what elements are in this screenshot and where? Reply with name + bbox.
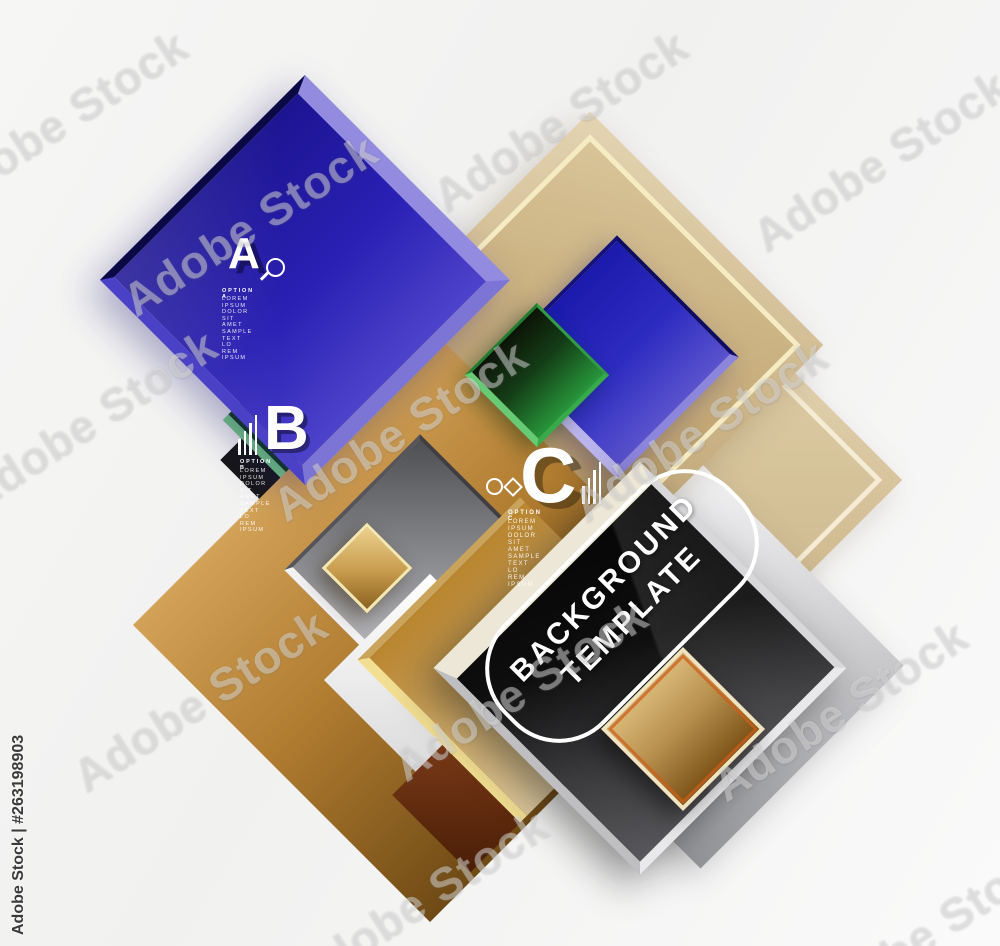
option-b-line: LOREM IPSUM: [240, 468, 271, 481]
option-c-text: LOREM IPSUM DOLOR SIT AMET SAMPLE TEXT L…: [508, 519, 541, 589]
option-b-line: SAMPLE TEXT LO: [240, 501, 271, 521]
magnifier-icon: [266, 258, 285, 277]
option-c-line: LOREM IPSUM: [508, 519, 541, 533]
option-a-letter: A: [228, 232, 260, 276]
option-b-line: DOLOR SIT AMET: [240, 481, 271, 501]
option-c-letter: C: [520, 436, 576, 514]
option-c-line: DOLOR SIT AMET: [508, 533, 541, 554]
watermark-id-text: Adobe Stock | #263198903: [10, 735, 28, 935]
option-c-line: REM IPSUM: [508, 575, 541, 589]
option-a-line: REM IPSUM: [222, 349, 253, 362]
option-a-line: DOLOR SIT AMET: [222, 309, 253, 329]
circle-icon: [486, 478, 503, 495]
option-b-line: REM IPSUM: [240, 521, 271, 534]
option-a-text: LOREM IPSUM DOLOR SIT AMET SAMPLE TEXT L…: [222, 296, 253, 362]
option-a-line: SAMPLE TEXT LO: [222, 329, 253, 349]
equalizer-bars-icon: [582, 460, 601, 504]
watermark-text: Adobe Stock: [0, 18, 197, 222]
watermark-text: Adobe Stock: [743, 58, 1000, 262]
option-b-text: LOREM IPSUM DOLOR SIT AMET SAMPLE TEXT L…: [240, 468, 271, 534]
equalizer-bars-icon: [238, 413, 257, 455]
stock-image-canvas: BACKGROUND TEMPLATE A OPTION A LOREM IPS…: [0, 0, 1000, 946]
watermark-text: Adobe Stock: [793, 828, 1000, 946]
option-c-line: SAMPLE TEXT LO: [508, 554, 541, 575]
option-a-line: LOREM IPSUM: [222, 296, 253, 309]
option-b-letter: B: [264, 398, 309, 460]
